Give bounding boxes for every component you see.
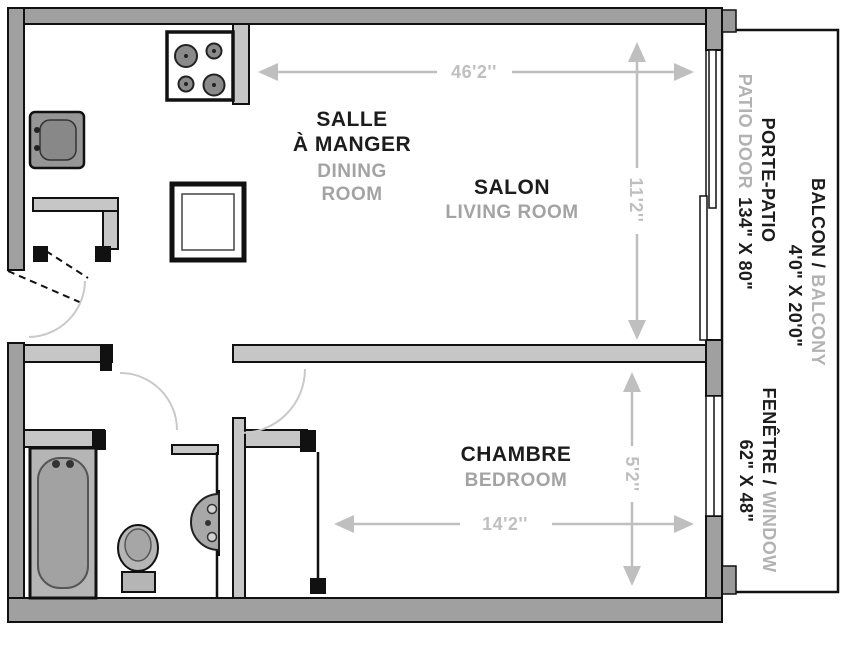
window-size: 62" X 48" <box>736 440 756 523</box>
entry-closet-left-cap <box>33 246 48 262</box>
bathroom-sink-drain <box>205 520 211 526</box>
stove-burner-center <box>212 49 216 53</box>
patio-door-sliding-panel <box>700 196 707 340</box>
patio-door-fixed-panel <box>709 50 716 208</box>
hall-bedroom-wall <box>233 418 245 598</box>
balcony-label-fr: BALCON / <box>808 178 828 268</box>
wall-right-top-segment <box>706 8 722 50</box>
entry-closet-top-wall <box>33 198 118 211</box>
bathroom-sink-knob <box>208 505 217 514</box>
kitchen-sink <box>30 112 84 168</box>
floor-plan-canvas: 46'2'' 11'2'' 14'2'' 5'2'' SALLE À MANGE… <box>0 0 850 657</box>
dimension-label-living-width: 46'2'' <box>451 62 497 82</box>
balcony-label-en: BALCONY <box>808 274 828 366</box>
stove-burner-center <box>184 54 188 58</box>
living-room-label-en: LIVING ROOM <box>445 202 578 223</box>
balcony-size: 4'0" X 20'0" <box>785 245 805 348</box>
toilet-tank <box>122 572 155 592</box>
patio-door-label-en: PATIO DOOR <box>735 74 755 189</box>
bathtub <box>30 448 96 598</box>
patio-door-label-fr: PORTE-PATIO <box>758 118 778 243</box>
dimension-label-window-height: 5'2'' <box>622 456 642 491</box>
kitchen-wall-stub <box>233 24 249 104</box>
divider-wall-left <box>24 345 112 362</box>
patio-door-label-en-size: PATIO DOOR134" X 80" <box>735 74 755 290</box>
bathroom-nook-wall <box>172 445 218 454</box>
bedroom-label-en: BEDROOM <box>465 470 568 491</box>
dining-room-label-en-line2: ROOM <box>321 184 382 205</box>
toilet <box>118 525 158 592</box>
stove-burner-center <box>184 82 188 86</box>
floor-plan: 46'2'' 11'2'' 14'2'' 5'2'' SALLE À MANGE… <box>0 0 850 657</box>
refrigerator <box>172 184 244 260</box>
wall-left-lower <box>8 343 24 622</box>
window-label-en: WINDOW <box>759 491 779 572</box>
bedroom-label-fr: CHAMBRE <box>461 443 572 466</box>
bathroom-sink-knob <box>208 533 217 542</box>
dimension-label-patio-height: 11'2'' <box>626 178 646 223</box>
window-label: FENÊTRE /WINDOW <box>759 388 780 573</box>
bedroom-window <box>706 396 722 516</box>
toilet-bowl-inner <box>125 529 151 561</box>
bathtub-faucet <box>66 460 74 468</box>
balcony-top-junction <box>722 10 736 32</box>
closet-top-wall-cap <box>300 430 316 452</box>
kitchen-sink-knob <box>34 145 40 151</box>
kitchen-sink-basin <box>40 120 76 160</box>
window-label-fr: FENÊTRE / <box>759 388 780 486</box>
stove <box>167 32 233 100</box>
entry-closet-right-cap <box>95 246 111 262</box>
dimension-label-bedroom-width: 14'2'' <box>482 514 528 534</box>
bathtub-basin <box>38 458 88 588</box>
divider-wall-left-cap <box>100 345 112 371</box>
wall-right-mid-segment <box>706 340 722 396</box>
dining-room-label-fr-line1: SALLE <box>316 108 387 131</box>
refrigerator-outline <box>172 184 244 260</box>
stove-burner-center <box>212 83 216 87</box>
balcony-bottom-junction <box>722 566 736 594</box>
living-room-label-fr: SALON <box>474 176 550 199</box>
kitchen-sink-knob <box>34 127 40 133</box>
divider-wall-right <box>233 345 706 362</box>
bathtub-faucet <box>52 460 60 468</box>
wall-left-upper <box>8 8 24 270</box>
dining-room-label-fr-line2: À MANGER <box>293 133 411 156</box>
wall-bottom <box>8 598 722 622</box>
wall-right-bottom-segment <box>706 516 722 598</box>
closet-right-wall-cap <box>310 578 326 594</box>
dining-room-label-en-line1: DINING <box>317 161 387 182</box>
wall-top <box>20 8 722 24</box>
entry-closet-right-wall <box>103 211 118 249</box>
patio-door-size: 134" X 80" <box>735 197 755 290</box>
